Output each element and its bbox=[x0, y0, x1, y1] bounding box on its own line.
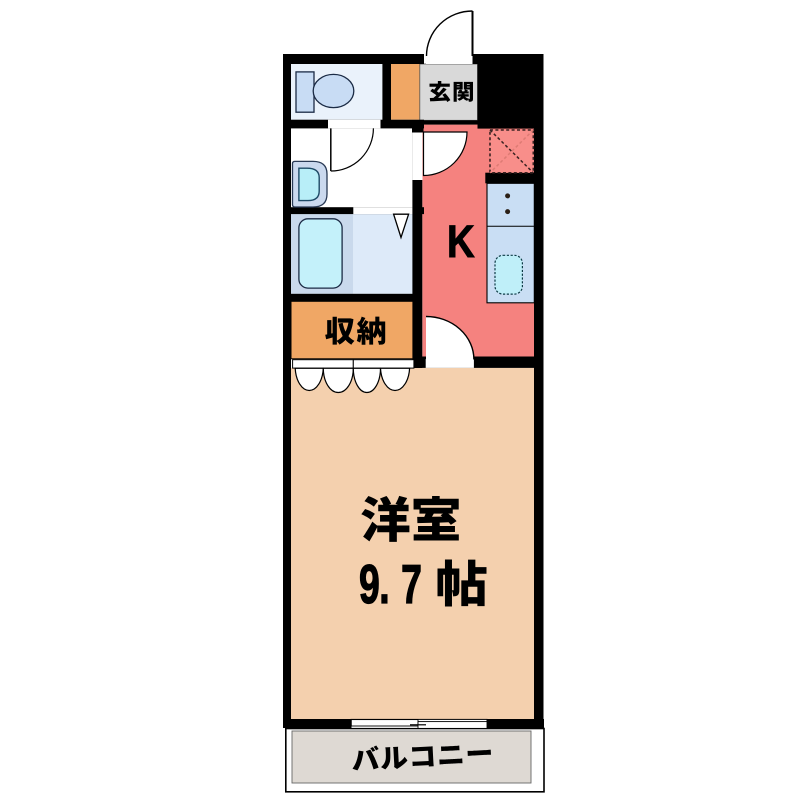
svg-text:9: 9 bbox=[359, 553, 380, 615]
svg-text:.: . bbox=[379, 553, 389, 615]
svg-text:K: K bbox=[447, 216, 475, 267]
svg-text:7: 7 bbox=[401, 553, 422, 615]
